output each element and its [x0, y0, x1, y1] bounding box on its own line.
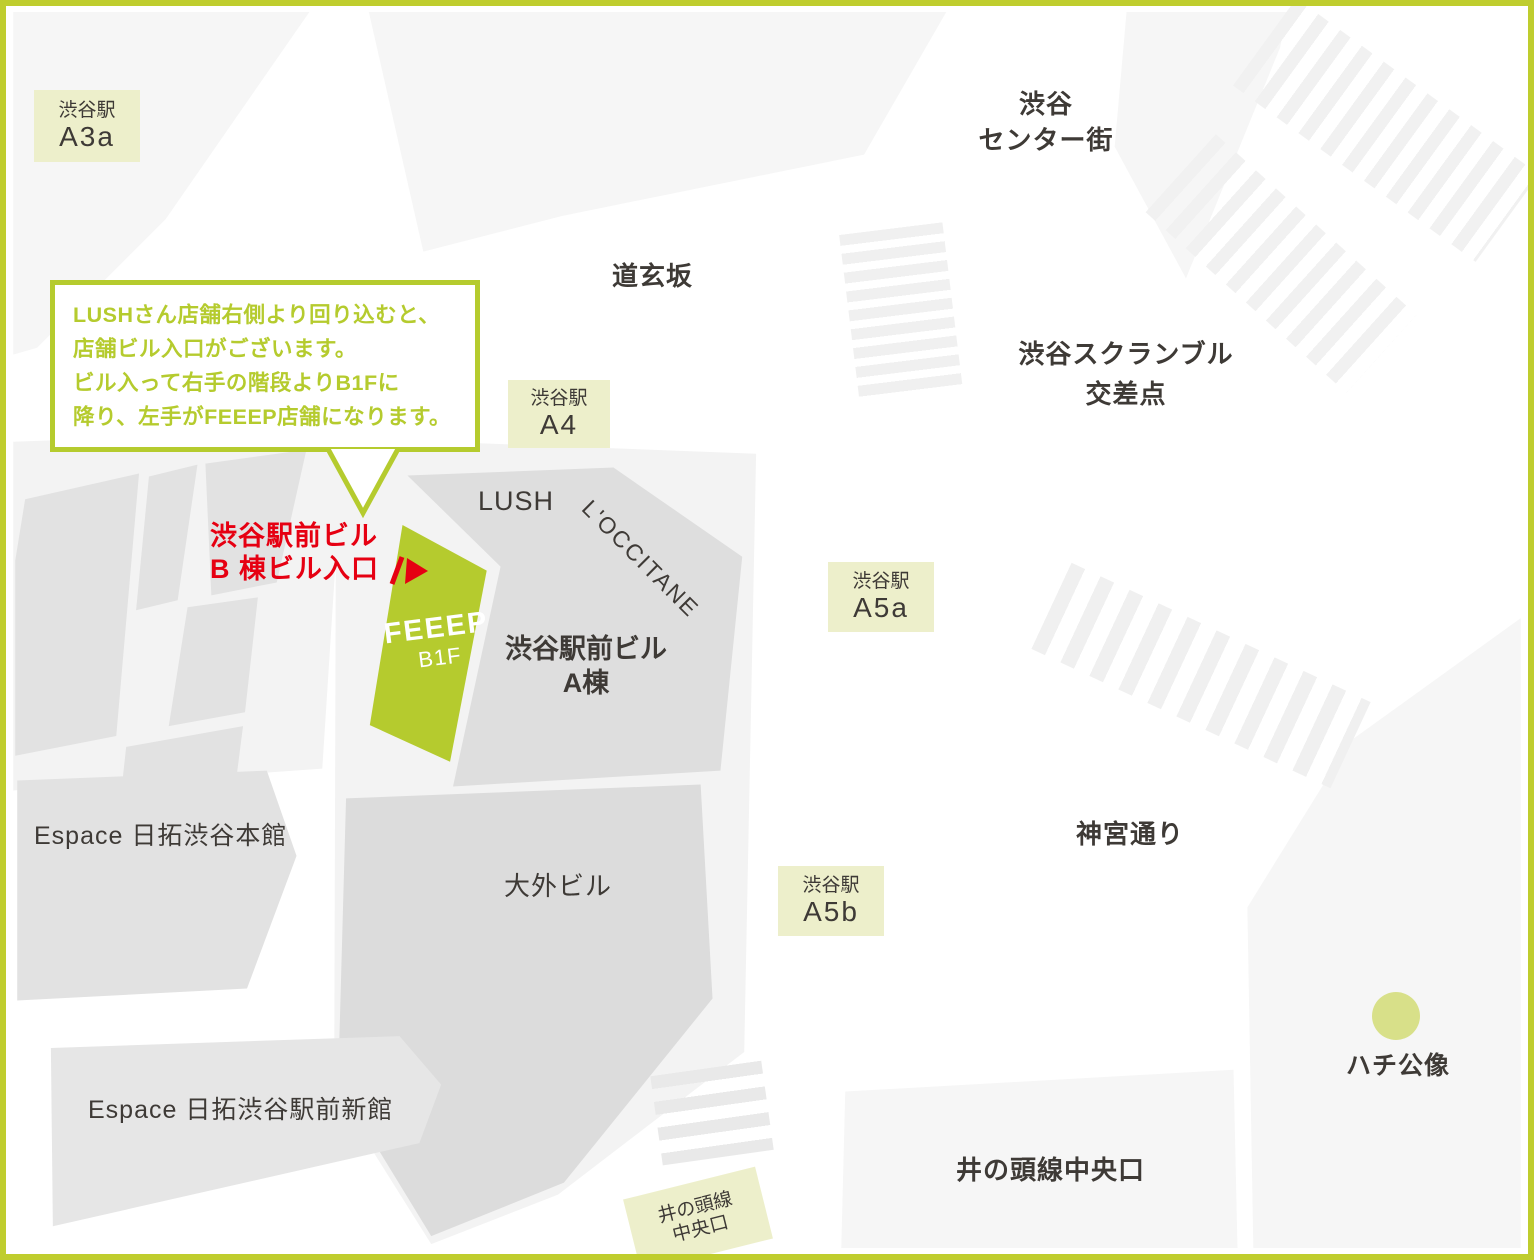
badge-shibuya-a5a: 渋谷駅 A5a	[828, 562, 934, 632]
label-lush: LUSH	[478, 486, 554, 517]
label-scramble-line1: 渋谷スクランブル	[986, 334, 1266, 374]
label-center-gai-line1: 渋谷	[936, 86, 1156, 122]
badge-a5a-station: 渋谷駅	[852, 571, 909, 593]
shibuya-access-map: 渋谷駅 A3a 渋谷駅 A4 渋谷駅 A5a 渋谷駅 A5b 井の頭線 中央口 …	[0, 0, 1534, 1260]
callout-line1: LUSHさん店舗右側より回り込むと、	[73, 298, 457, 332]
badge-a3a-exit: A3a	[59, 122, 115, 152]
label-scramble-crossing: 渋谷スクランブル 交差点	[986, 334, 1266, 414]
badge-a5b-station: 渋谷駅	[802, 875, 859, 897]
map-shapes	[6, 6, 1528, 1254]
label-espace-shinkan: Espace 日拓渋谷駅前新館	[88, 1090, 393, 1126]
badge-a4-exit: A4	[540, 410, 578, 440]
b-wing-entrance-label: 渋谷駅前ビル B 棟ビル入口	[210, 520, 429, 586]
entrance-line1: 渋谷駅前ビル	[210, 520, 429, 553]
crosswalk-dogenzaka	[839, 222, 963, 401]
label-daigai: 大外ビル	[504, 866, 612, 903]
block-top-center	[369, 12, 946, 252]
label-espace-honkan: Espace 日拓渋谷本館	[34, 816, 287, 852]
label-scramble-line2: 交差点	[986, 374, 1266, 414]
callout-line4: 降り、左手がFEEEP店舗になります。	[73, 400, 457, 434]
label-dogenzaka: 道玄坂	[612, 256, 693, 293]
building-espace-honkan	[17, 771, 296, 1001]
badge-shibuya-a3a: 渋谷駅 A3a	[34, 90, 140, 162]
badge-shibuya-a4: 渋谷駅 A4	[508, 380, 610, 448]
label-jingu-dori: 神宮通り	[1076, 814, 1184, 851]
callout-line3: ビル入って右手の階段よりB1Fに	[73, 366, 457, 400]
label-center-gai: 渋谷 センター街	[936, 86, 1156, 158]
crosswalk-inokashira	[650, 1061, 773, 1166]
label-hachiko: ハチ公像	[1346, 1046, 1450, 1082]
badge-a5a-exit: A5a	[853, 593, 909, 623]
label-center-gai-line2: センター街	[936, 122, 1156, 158]
hachiko-statue-marker	[1372, 992, 1420, 1040]
building-daigai	[338, 785, 712, 1237]
building-espace-shinkan	[51, 1036, 441, 1226]
label-ekimae-a-line2: A棟	[501, 666, 671, 700]
label-inokashira-chuo-exit: 井の頭線中央口	[956, 1150, 1145, 1187]
badge-a5b-exit: A5b	[803, 897, 859, 927]
directions-callout: LUSHさん店舗右側より回り込むと、 店舗ビル入口がございます。 ビル入って右手…	[50, 280, 480, 452]
entrance-arrow-icon	[385, 554, 429, 586]
label-ekimae-a-line1: 渋谷駅前ビル	[501, 632, 671, 666]
badge-a4-station: 渋谷駅	[530, 388, 587, 410]
callout-tail	[316, 447, 411, 519]
callout-line2: 店舗ビル入口がございます。	[73, 332, 457, 366]
badge-shibuya-a5b: 渋谷駅 A5b	[778, 866, 884, 936]
entrance-line2: B 棟ビル入口	[210, 553, 379, 586]
label-ekimae-a: 渋谷駅前ビル A棟	[501, 632, 671, 700]
badge-a3a-station: 渋谷駅	[58, 100, 115, 122]
